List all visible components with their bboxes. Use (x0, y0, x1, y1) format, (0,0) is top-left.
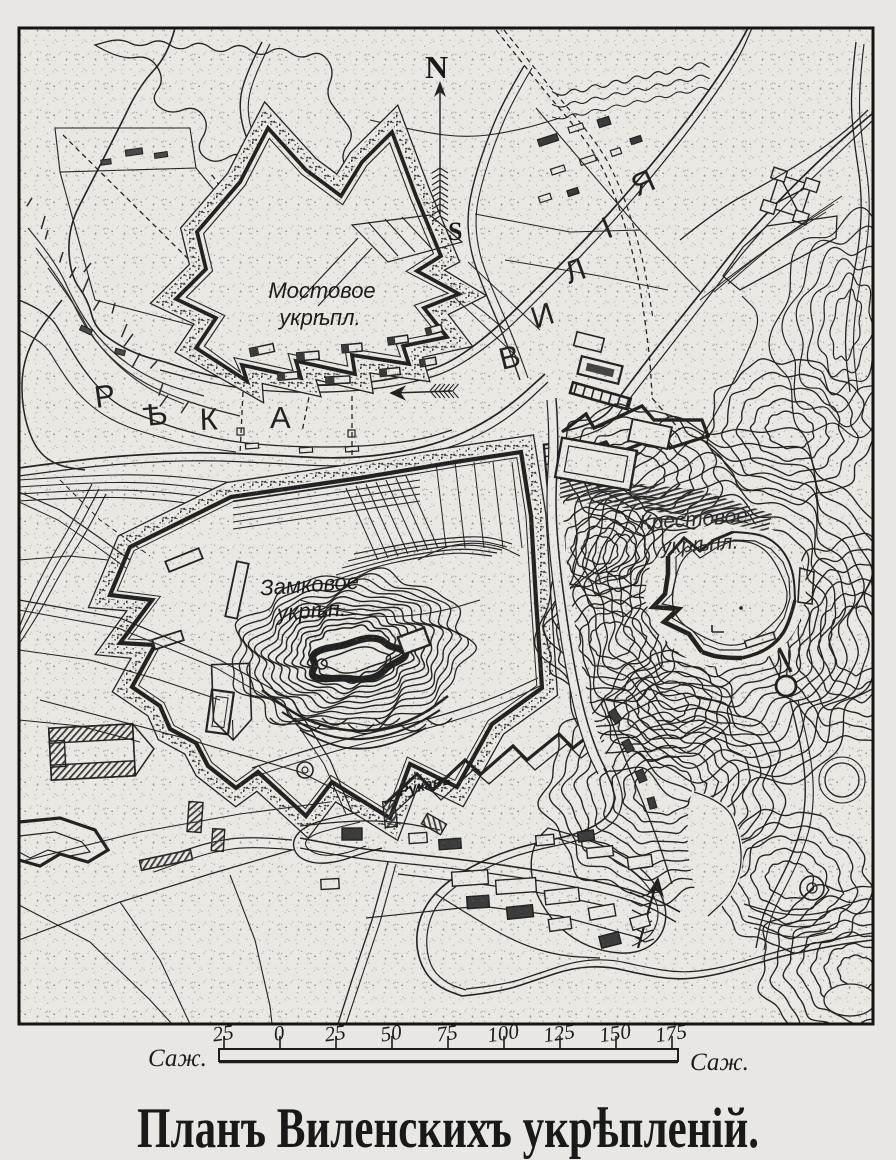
svg-text:75: 75 (435, 1020, 459, 1047)
svg-text:175: 175 (654, 1019, 689, 1047)
svg-text:Планъ Виленскихъ укрѣпленій.: Планъ Виленскихъ укрѣпленій. (137, 1097, 759, 1160)
svg-text:25: 25 (323, 1020, 347, 1047)
svg-text:125: 125 (542, 1019, 577, 1047)
svg-text:Саж.: Саж. (690, 1049, 749, 1076)
svg-text:Саж.: Саж. (148, 1045, 207, 1072)
svg-text:25: 25 (211, 1020, 235, 1047)
